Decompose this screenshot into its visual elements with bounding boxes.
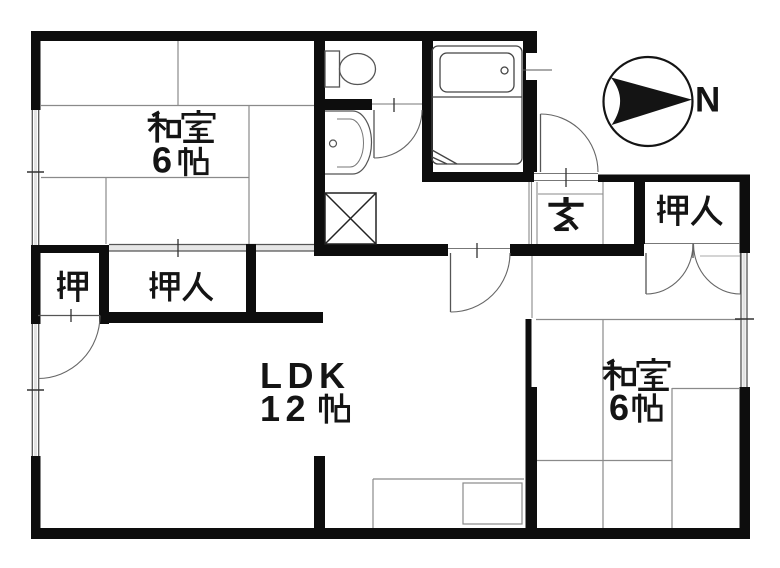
svg-text:6: 6 bbox=[152, 140, 172, 181]
svg-text:12: 12 bbox=[260, 388, 311, 429]
svg-text:6: 6 bbox=[609, 387, 629, 428]
svg-text:N: N bbox=[695, 81, 720, 120]
